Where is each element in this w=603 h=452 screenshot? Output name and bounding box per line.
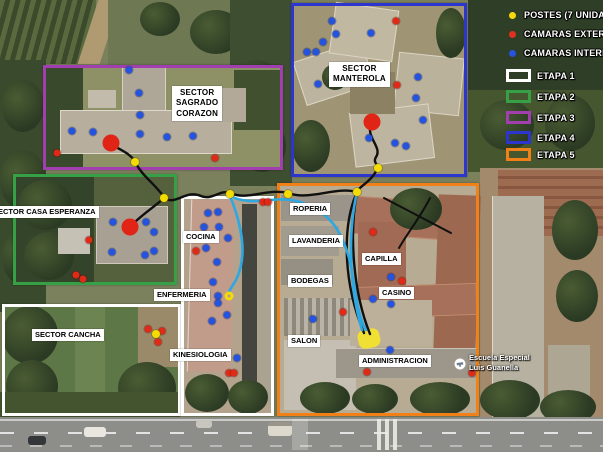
place-name-line2: Luis Guanella: [469, 363, 530, 373]
camara-externa-dot: [54, 150, 61, 157]
camara-interna-dot: [420, 117, 427, 124]
camara-interna-dot: [225, 235, 232, 242]
legend-label: ETAPA 1: [537, 71, 575, 81]
nodo-camara-principal: [364, 114, 381, 131]
camara-interna-dot: [333, 31, 340, 38]
camara-externa-dot: [212, 155, 219, 162]
camara-interna-dot: [201, 224, 208, 231]
cable-route-black-3: [230, 192, 288, 196]
legend-label: CAMARAS EXTERNAS: [524, 29, 603, 39]
poste-dot: [160, 194, 168, 202]
camara-interna-dot: [205, 210, 212, 217]
place-name-line1: Escuela Especial: [469, 353, 530, 363]
camara-interna-dot: [126, 67, 133, 74]
map-detail: [454, 358, 466, 370]
camara-interna-dot: [210, 279, 217, 286]
camara-interna-dot: [110, 219, 117, 226]
cable-route-black-2: [164, 192, 230, 200]
camara-externa-dot: [364, 369, 371, 376]
school-icon[interactable]: [454, 357, 466, 369]
legend-item-camaras-externas: CAMARAS EXTERNAS: [503, 29, 603, 39]
legend-item-etapa-4: ETAPA 4: [503, 131, 575, 144]
legend-item-postes-7-unidades-: POSTES (7 UNIDADES): [503, 10, 603, 20]
legend-dot-swatch: [509, 50, 516, 57]
camara-interna-dot: [216, 224, 223, 231]
camara-interna-dot: [137, 131, 144, 138]
cable-route-cyan-14: [351, 192, 362, 330]
camara-externa-dot: [370, 229, 377, 236]
camara-interna-dot: [69, 128, 76, 135]
camara-interna-dot: [366, 135, 373, 142]
place-name[interactable]: Escuela Especial Luis Guanella: [469, 353, 530, 373]
camara-interna-dot: [388, 274, 395, 281]
camara-interna-dot: [413, 95, 420, 102]
camara-interna-dot: [90, 129, 97, 136]
camara-externa-dot: [394, 82, 401, 89]
camara-interna-dot: [415, 74, 422, 81]
camara-externa-dot: [193, 248, 200, 255]
label-salon: SALON: [288, 335, 320, 347]
camara-externa-dot: [399, 278, 406, 285]
label-sector-cancha: SECTOR CANCHA: [32, 329, 104, 341]
label-sector-casa-esperanza: SECTOR CASA ESPERANZA: [0, 206, 99, 218]
camara-interna-dot: [137, 112, 144, 119]
camara-interna-dot: [215, 209, 222, 216]
camara-interna-dot: [143, 219, 150, 226]
camara-interna-dot: [310, 316, 317, 323]
legend-rect-swatch: [506, 148, 531, 161]
cable-route-black-4: [288, 191, 357, 196]
camara-externa-dot: [393, 18, 400, 25]
camara-interna-dot: [215, 293, 222, 300]
legend-rect-swatch: [506, 111, 531, 124]
camara-interna-dot: [313, 49, 320, 56]
camara-externa-dot: [86, 237, 93, 244]
map-place-label[interactable]: Escuela Especial Luis Guanella: [454, 353, 530, 373]
camara-interna-dot: [304, 49, 311, 56]
camara-interna-dot: [392, 140, 399, 147]
camara-interna-dot: [370, 296, 377, 303]
camara-externa-dot: [265, 199, 272, 206]
poste-dot: [353, 188, 361, 196]
legend-rect-swatch: [506, 90, 531, 103]
label-bodegas: BODEGAS: [288, 275, 332, 287]
label-administracion: ADMINISTRACION: [359, 355, 431, 367]
legend-dot-swatch: [509, 31, 516, 38]
legend-label: ETAPA 4: [537, 133, 575, 143]
camara-externa-dot: [340, 309, 347, 316]
camara-interna-dot: [403, 143, 410, 150]
poste-dot: [374, 164, 382, 172]
poste-dot: [284, 190, 292, 198]
camara-interna-dot: [234, 355, 241, 362]
label-kinesiologia: KINESIOLOGIA: [170, 349, 231, 361]
label-sector-sagrado-corazon: SECTOR SAGRADO CORAZON: [172, 86, 222, 121]
legend-label: CAMARAS INTERNAS: [524, 48, 603, 58]
cable-route-black-9: [384, 198, 451, 233]
camara-externa-dot: [155, 339, 162, 346]
camara-interna-dot: [315, 81, 322, 88]
camara-interna-dot: [320, 39, 327, 46]
cable-route-black-1: [135, 162, 164, 197]
legend-item-etapa-1: ETAPA 1: [503, 69, 575, 82]
camara-interna-dot: [215, 300, 222, 307]
map-detail: [459, 365, 461, 367]
legend-item-camaras-internas: CAMARAS INTERNAS: [503, 48, 603, 58]
camara-interna-dot: [224, 312, 231, 319]
poste-dot: [226, 190, 234, 198]
legend-label: ETAPA 3: [537, 113, 575, 123]
camara-interna-dot: [136, 90, 143, 97]
legend-label: ETAPA 2: [537, 92, 575, 102]
camara-externa-dot: [80, 276, 87, 283]
cable-route-cyan-12: [229, 196, 242, 293]
camara-interna-dot: [164, 134, 171, 141]
camara-externa-dot: [231, 370, 238, 377]
cable-route-black-10: [399, 198, 430, 248]
camara-externa-dot: [145, 326, 152, 333]
label-enfermeria: ENFERMERIA: [154, 289, 210, 301]
camara-interna-dot: [151, 229, 158, 236]
label-roperia: ROPERIA: [290, 203, 330, 215]
poste-dot: [131, 158, 139, 166]
camara-interna-dot: [209, 318, 216, 325]
legend-label: POSTES (7 UNIDADES): [524, 10, 603, 20]
annotated-satellite-map: SECTOR SAGRADO CORAZONSECTOR MANTEROLASE…: [0, 0, 603, 452]
camara-interna-dot: [109, 249, 116, 256]
legend-item-etapa-3: ETAPA 3: [503, 111, 575, 124]
legend-item-etapa-2: ETAPA 2: [503, 90, 575, 103]
legend-label: ETAPA 5: [537, 150, 575, 160]
camara-externa-dot: [73, 272, 80, 279]
label-capilla: CAPILLA: [362, 253, 401, 265]
camara-interna-dot: [190, 133, 197, 140]
camara-interna-dot: [368, 30, 375, 37]
camara-interna-dot: [329, 18, 336, 25]
camara-interna-dot: [151, 248, 158, 255]
camara-interna-dot: [203, 245, 210, 252]
nodo-camara-principal: [103, 135, 120, 152]
label-cocina: COCINA: [183, 231, 219, 243]
poste-dot: [152, 330, 160, 338]
legend-rect-swatch: [506, 131, 531, 144]
camara-interna-dot: [388, 301, 395, 308]
legend-dot-swatch: [509, 12, 516, 19]
legend: POSTES (7 UNIDADES)CAMARAS EXTERNASCAMAR…: [503, 0, 603, 172]
label-sector-manterola: SECTOR MANTEROLA: [329, 62, 390, 87]
camara-interna-dot: [387, 347, 394, 354]
legend-rect-swatch: [506, 69, 531, 82]
camara-interna-dot: [142, 252, 149, 259]
yellow-ring-marker: [225, 292, 234, 301]
label-lavanderia: LAVANDERIA: [289, 235, 343, 247]
nodo-camara-principal: [122, 219, 139, 236]
label-casino: CASINO: [379, 287, 414, 299]
legend-item-etapa-5: ETAPA 5: [503, 148, 575, 161]
camara-interna-dot: [214, 259, 221, 266]
